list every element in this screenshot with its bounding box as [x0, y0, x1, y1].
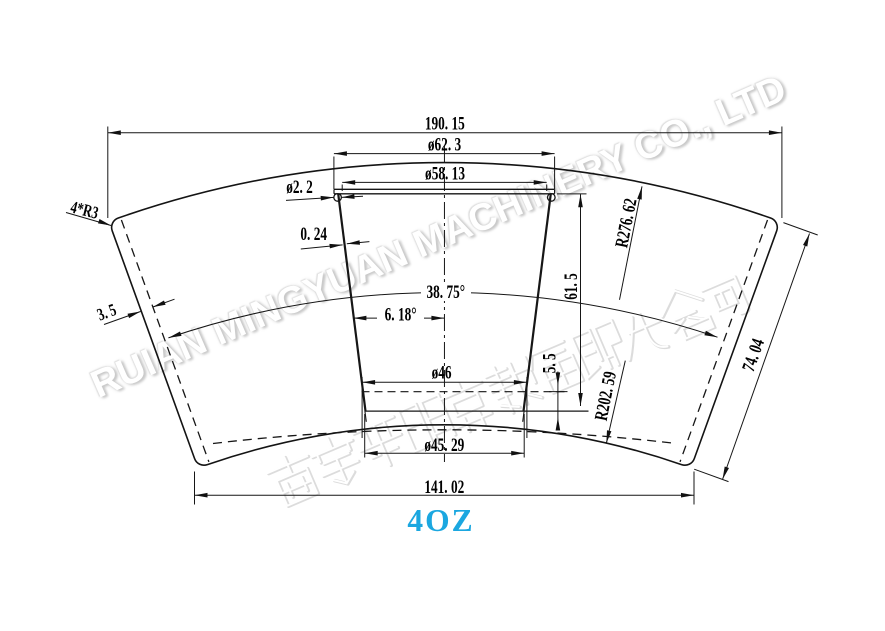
svg-text:190. 15: 190. 15 [425, 115, 465, 135]
svg-text:ø2. 2: ø2. 2 [286, 178, 313, 198]
svg-text:3. 5: 3. 5 [95, 300, 120, 325]
svg-text:4*R3: 4*R3 [69, 198, 101, 224]
svg-text:61. 5: 61. 5 [562, 273, 582, 300]
svg-text:74. 04: 74. 04 [739, 336, 769, 374]
svg-text:ø62. 3: ø62. 3 [428, 136, 461, 156]
svg-text:0. 24: 0. 24 [300, 225, 327, 245]
svg-text:R202. 59: R202. 59 [592, 370, 621, 422]
svg-text:ø58. 13: ø58. 13 [425, 164, 465, 184]
svg-text:6. 18°: 6. 18° [385, 306, 417, 326]
svg-text:4OZ: 4OZ [407, 503, 474, 538]
svg-text:38. 75°: 38. 75° [426, 283, 465, 303]
svg-text:141. 02: 141. 02 [424, 478, 464, 498]
svg-text:R276. 62: R276. 62 [612, 197, 641, 249]
svg-text:ø46: ø46 [432, 364, 452, 384]
svg-text:5. 5: 5. 5 [540, 353, 560, 373]
svg-text:ø45. 29: ø45. 29 [424, 436, 464, 456]
